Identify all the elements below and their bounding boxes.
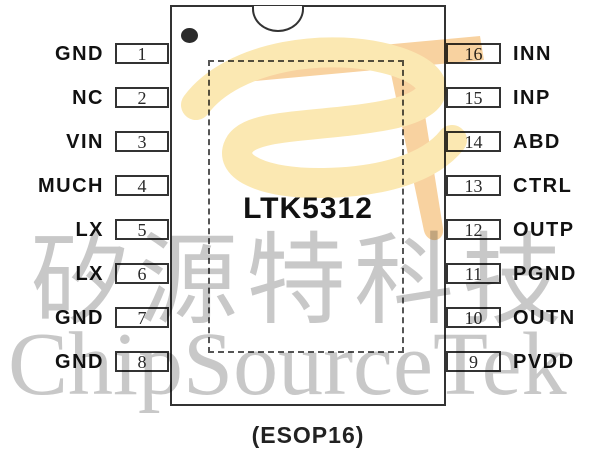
pin-number: 8 [138, 353, 147, 371]
pin-name: GND [55, 352, 104, 372]
pin-row-13: 13 CTRL [446, 175, 600, 196]
pin-name: MUCH [38, 176, 104, 196]
pin-number-box: 8 [115, 351, 169, 372]
pin-number: 12 [465, 221, 483, 239]
pin-row-12: 12 OUTP [446, 219, 600, 240]
pin-number-box: 6 [115, 263, 169, 284]
pin-row-14: 14 ABD [446, 131, 600, 152]
pin-name: GND [55, 308, 104, 328]
pin-number: 14 [465, 133, 483, 151]
pin-name: LX [75, 264, 104, 284]
pin-name: PGND [513, 264, 577, 284]
pin-row-11: 11 PGND [446, 263, 600, 284]
pin-number-box: 15 [446, 87, 501, 108]
pin-name: CTRL [513, 176, 572, 196]
pin-name: INN [513, 44, 552, 64]
pin-row-2: NC 2 [0, 87, 169, 108]
pin1-indicator-dot [181, 28, 198, 43]
pin-number: 2 [138, 89, 147, 107]
pin-name: VIN [66, 132, 104, 152]
pin-number: 5 [138, 221, 147, 239]
pin-number: 1 [138, 45, 147, 63]
pin-number: 9 [469, 353, 478, 371]
pin-row-6: LX 6 [0, 263, 169, 284]
pin-name: GND [55, 44, 104, 64]
pin-row-15: 15 INP [446, 87, 600, 108]
pin-row-7: GND 7 [0, 307, 169, 328]
pin-number-box: 3 [115, 131, 169, 152]
pin-number: 10 [465, 309, 483, 327]
pin-name: INP [513, 88, 551, 108]
pin-name: NC [72, 88, 104, 108]
pin-number-box: 9 [446, 351, 501, 372]
pin-row-5: LX 5 [0, 219, 169, 240]
pin-number: 15 [465, 89, 483, 107]
pin-number: 16 [465, 45, 483, 63]
pin-number-box: 14 [446, 131, 501, 152]
pin-number: 7 [138, 309, 147, 327]
pin-row-1: GND 1 [0, 43, 169, 64]
pin-name: LX [75, 220, 104, 240]
pin-row-10: 10 OUTN [446, 307, 600, 328]
pinout-diagram: LTK5312 (ESOP16) GND 1 NC 2 VIN 3 MUCH 4… [0, 0, 600, 450]
pin-number-box: 13 [446, 175, 501, 196]
pin-name: OUTN [513, 308, 576, 328]
pin-number: 11 [465, 265, 482, 283]
package-label: (ESOP16) [170, 422, 446, 449]
pin-number: 3 [138, 133, 147, 151]
pin-row-3: VIN 3 [0, 131, 169, 152]
pin-number-box: 10 [446, 307, 501, 328]
pin-number-box: 7 [115, 307, 169, 328]
pin-number-box: 5 [115, 219, 169, 240]
chip-name: LTK5312 [170, 192, 446, 226]
pin-number-box: 4 [115, 175, 169, 196]
pin-row-9: 9 PVDD [446, 351, 600, 372]
pin-number-box: 1 [115, 43, 169, 64]
pin-number-box: 16 [446, 43, 501, 64]
pin-number-box: 2 [115, 87, 169, 108]
pin-number-box: 12 [446, 219, 501, 240]
pin-row-8: GND 8 [0, 351, 169, 372]
pin-number: 4 [138, 177, 147, 195]
pin-number: 13 [465, 177, 483, 195]
pin-row-4: MUCH 4 [0, 175, 169, 196]
pin-name: ABD [513, 132, 561, 152]
pin-number-box: 11 [446, 263, 501, 284]
pin-row-16: 16 INN [446, 43, 600, 64]
pin-number: 6 [138, 265, 147, 283]
pin-name: PVDD [513, 352, 575, 372]
pin-name: OUTP [513, 220, 575, 240]
